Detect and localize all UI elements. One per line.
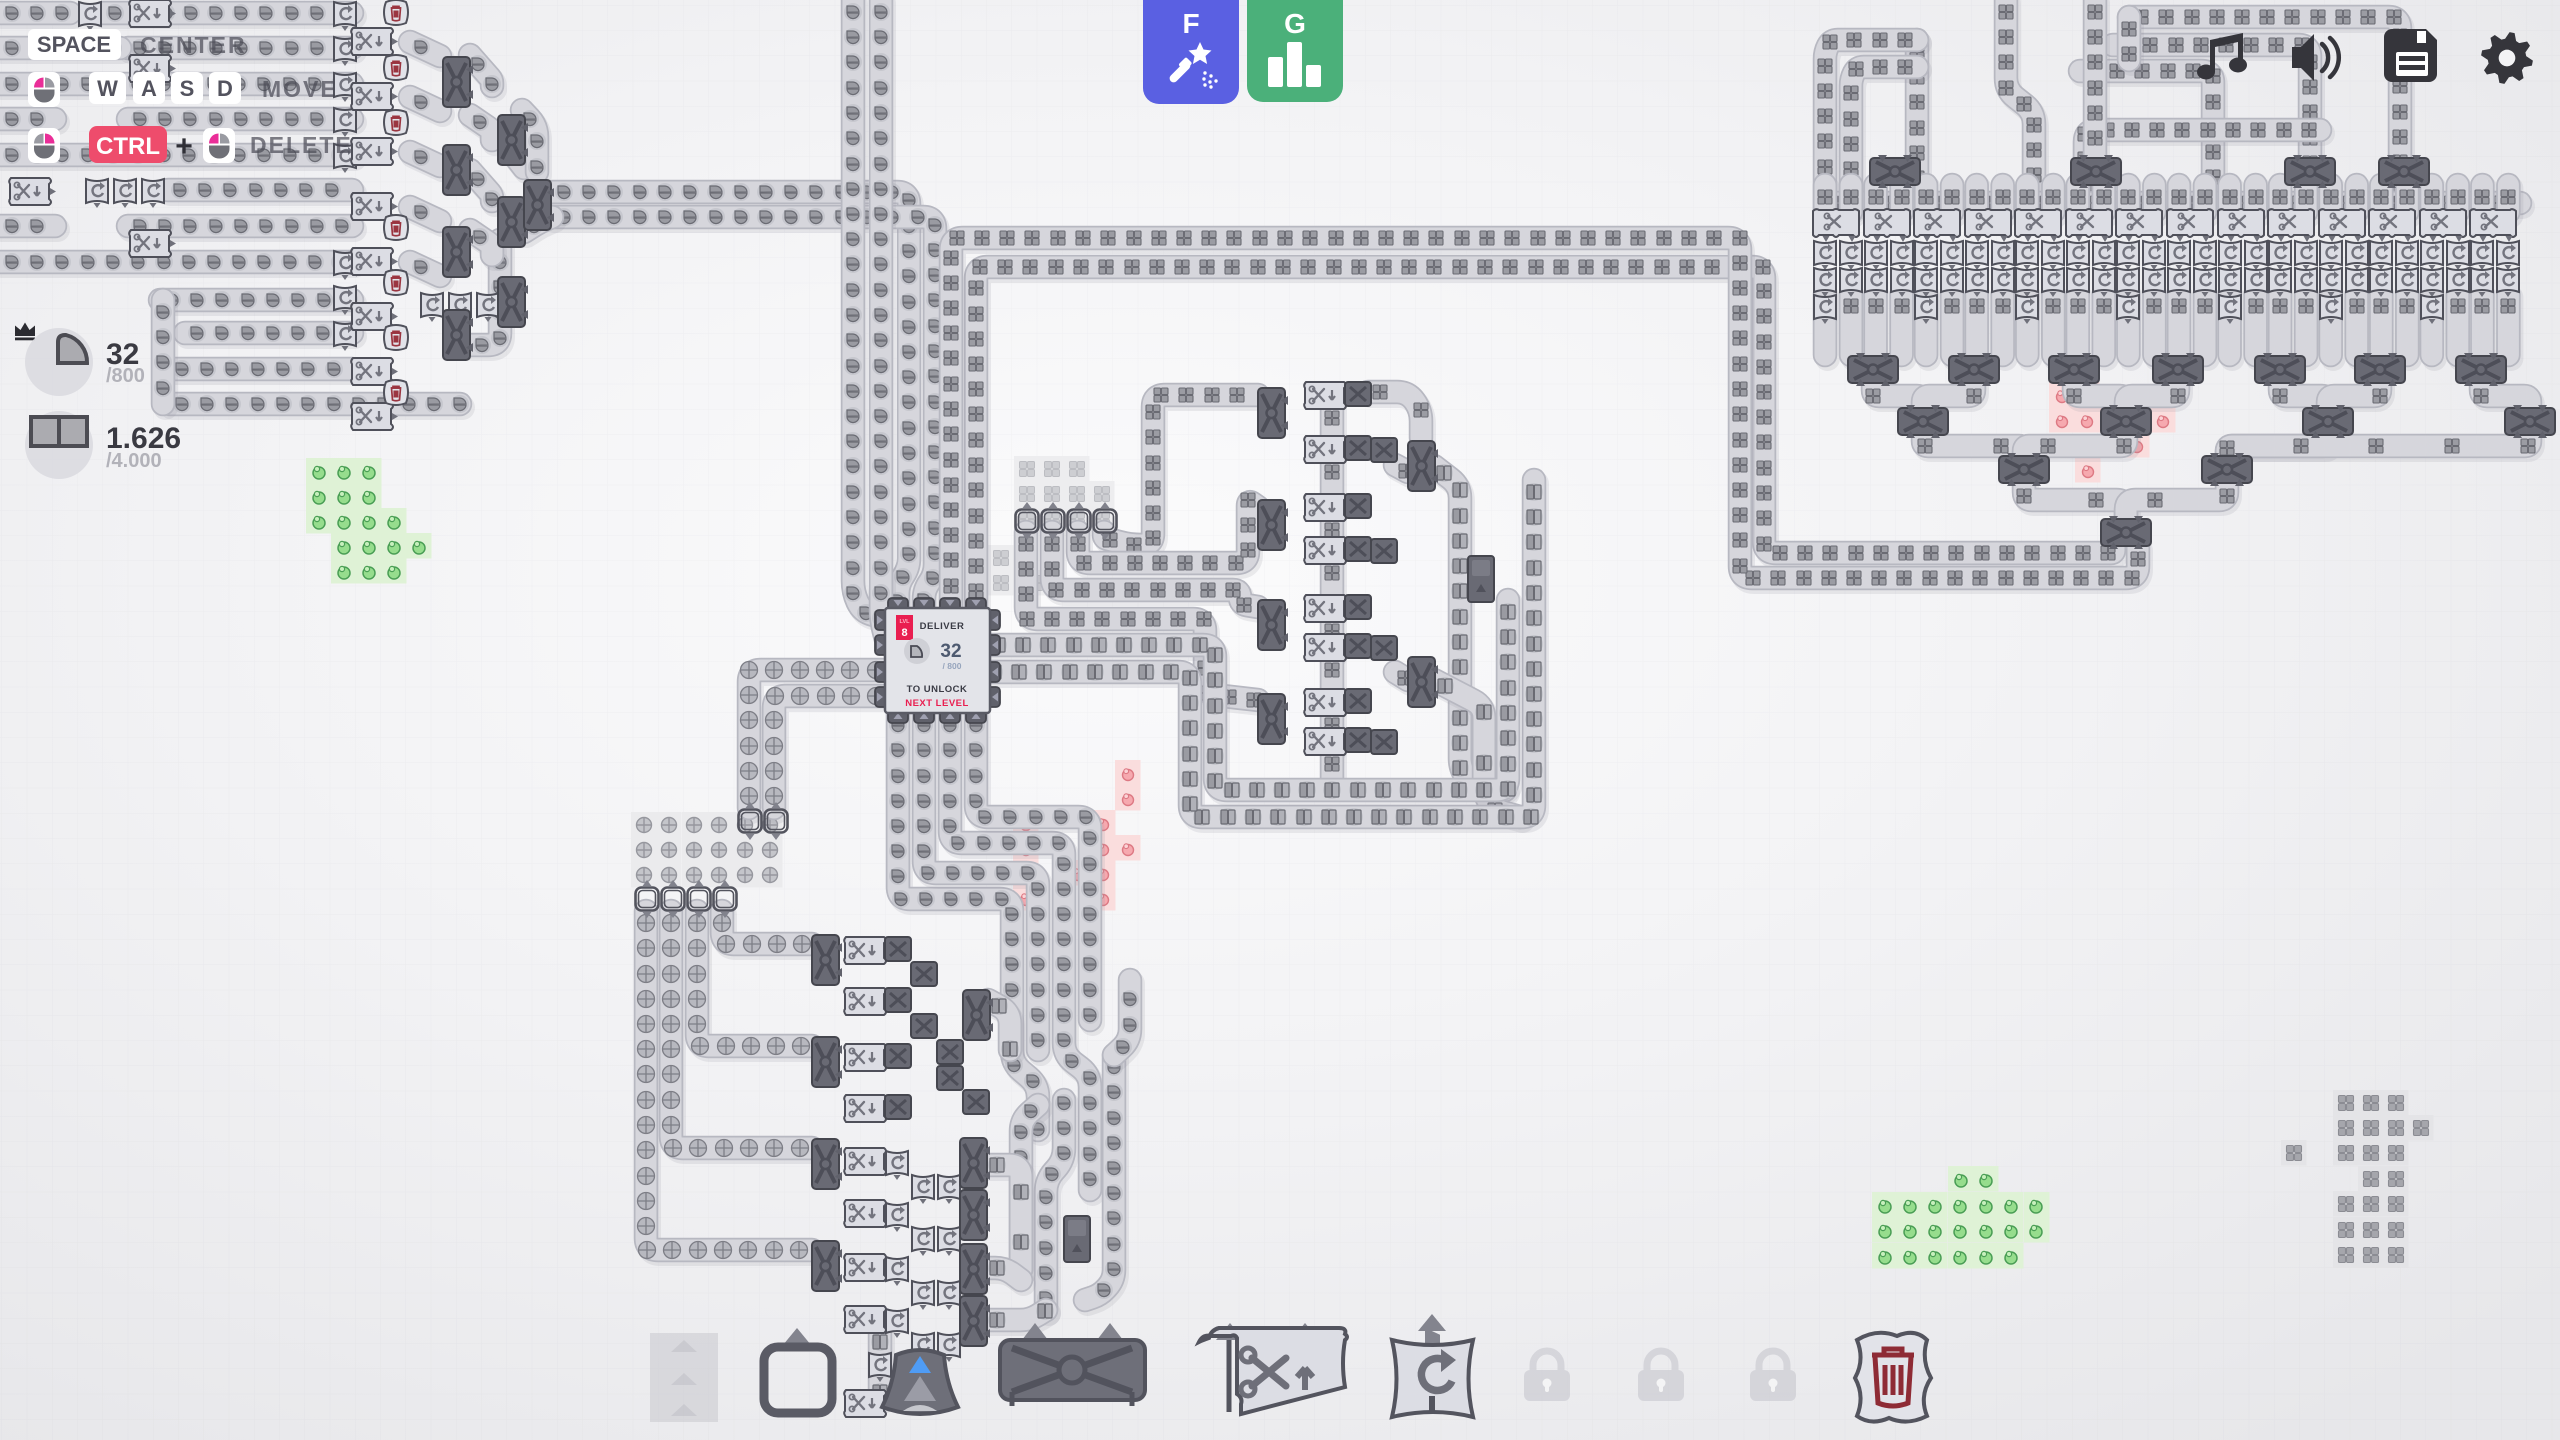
svg-text:D: D bbox=[217, 76, 233, 101]
svg-text:MOVE: MOVE bbox=[262, 76, 338, 102]
svg-text:CTRL: CTRL bbox=[96, 133, 160, 160]
svg-text:CENTER: CENTER bbox=[140, 32, 247, 58]
svg-text:SPACE: SPACE bbox=[37, 32, 111, 57]
svg-text:G: G bbox=[1284, 8, 1306, 39]
svg-text:W: W bbox=[97, 76, 118, 101]
svg-text:32: 32 bbox=[940, 641, 961, 662]
svg-text:F: F bbox=[1182, 8, 1199, 39]
svg-text:TO UNLOCK: TO UNLOCK bbox=[907, 684, 968, 695]
svg-text:NEXT LEVEL: NEXT LEVEL bbox=[905, 698, 969, 709]
svg-text:A: A bbox=[141, 76, 157, 101]
svg-text:/4.000: /4.000 bbox=[106, 450, 162, 472]
svg-text:LVL: LVL bbox=[900, 619, 911, 625]
svg-text:/800: /800 bbox=[106, 365, 145, 387]
svg-text:/ 800: / 800 bbox=[943, 661, 962, 671]
svg-text:S: S bbox=[180, 76, 195, 101]
svg-text:8: 8 bbox=[901, 627, 907, 639]
svg-text:DELETE: DELETE bbox=[250, 132, 353, 158]
svg-text:DELIVER: DELIVER bbox=[920, 621, 965, 632]
svg-text:+: + bbox=[175, 130, 193, 163]
